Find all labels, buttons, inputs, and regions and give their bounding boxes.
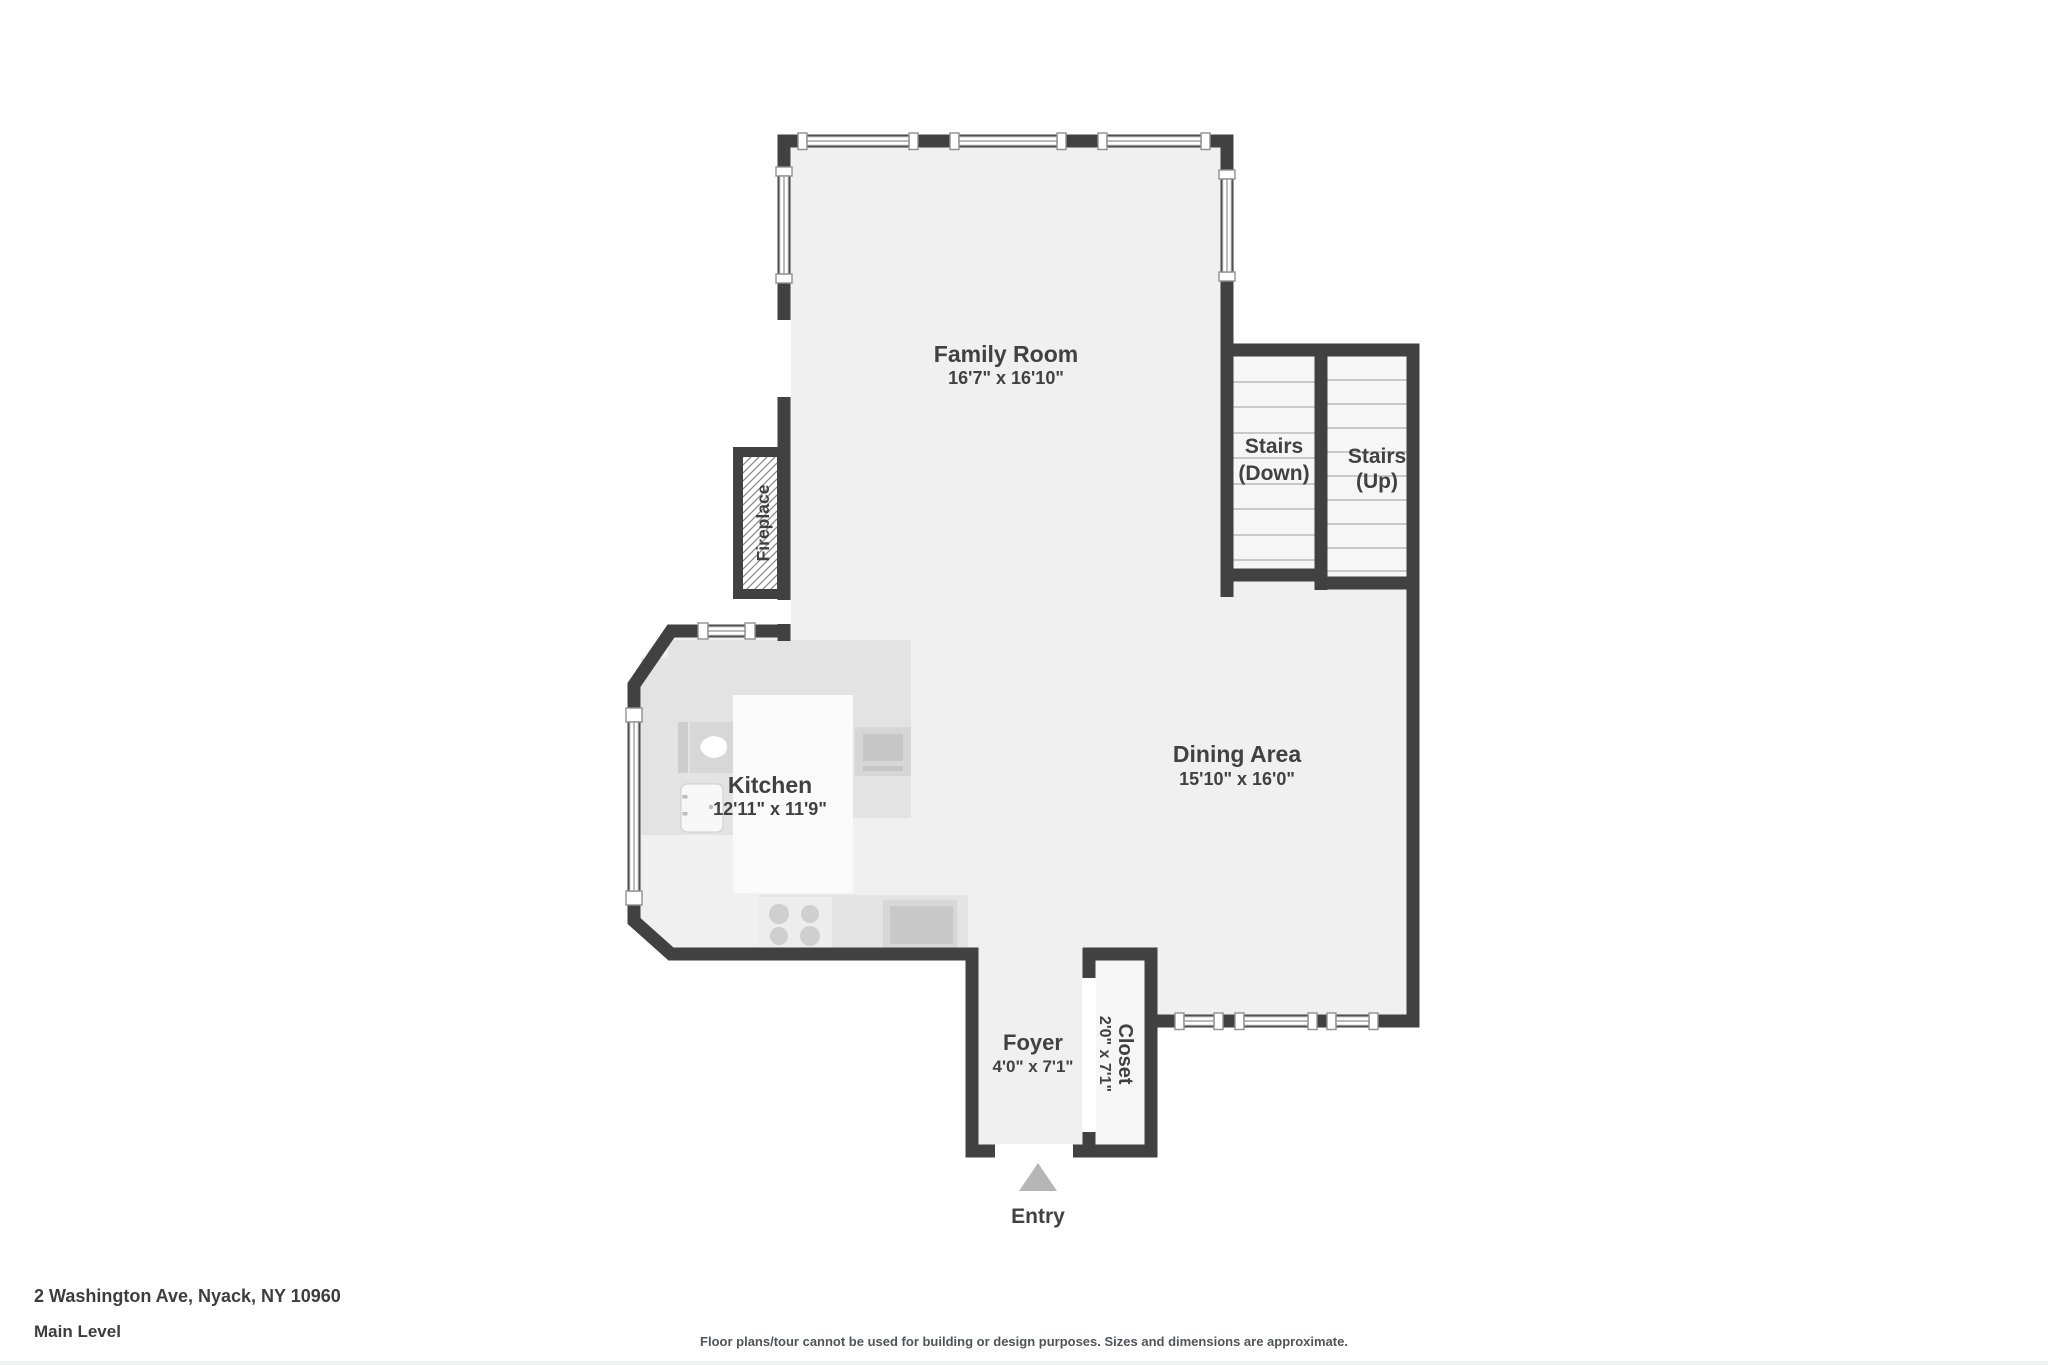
kitchen-dims: 12'11" x 11'9" xyxy=(713,799,827,819)
foyer-label: Foyer xyxy=(1003,1030,1063,1055)
stairs-up-label-1: Stairs xyxy=(1348,445,1406,468)
disclaimer-text: Floor plans/tour cannot be used for buil… xyxy=(0,1334,2048,1349)
property-address: 2 Washington Ave, Nyack, NY 10960 xyxy=(34,1286,341,1307)
wall-oven-icon xyxy=(855,727,911,776)
sink-icon xyxy=(678,722,733,773)
family-room-label: Family Room xyxy=(934,341,1078,367)
bottom-divider xyxy=(0,1361,2048,1365)
foyer-dims: 4'0" x 7'1" xyxy=(993,1057,1074,1076)
fireplace-label: Fireplace xyxy=(753,484,773,561)
dishwasher-icon xyxy=(883,900,957,948)
entry-label: Entry xyxy=(1011,1205,1065,1228)
closet-dims: 2'0" x 7'1" xyxy=(1096,1016,1113,1092)
dining-area-dims: 15'10" x 16'0" xyxy=(1179,769,1295,789)
dining-area-label: Dining Area xyxy=(1173,741,1301,767)
closet-label: Closet xyxy=(1114,1023,1136,1084)
entry-arrow-icon xyxy=(1019,1163,1057,1191)
floor-plan-page: Fireplace Family Room 16'7" x 16'10" Sta… xyxy=(0,0,2048,1365)
floor-plan-drawing: Fireplace Family Room 16'7" x 16'10" Sta… xyxy=(0,0,2048,1365)
kitchen-label: Kitchen xyxy=(728,772,812,798)
stairs-down-label-1: Stairs xyxy=(1245,435,1303,458)
fireplace: Fireplace xyxy=(738,452,782,594)
stove-icon xyxy=(758,897,832,948)
family-room-dims: 16'7" x 16'10" xyxy=(948,368,1064,388)
stairs-up-label-2: (Up) xyxy=(1356,470,1398,493)
stairs-down-label-2: (Down) xyxy=(1238,462,1309,485)
